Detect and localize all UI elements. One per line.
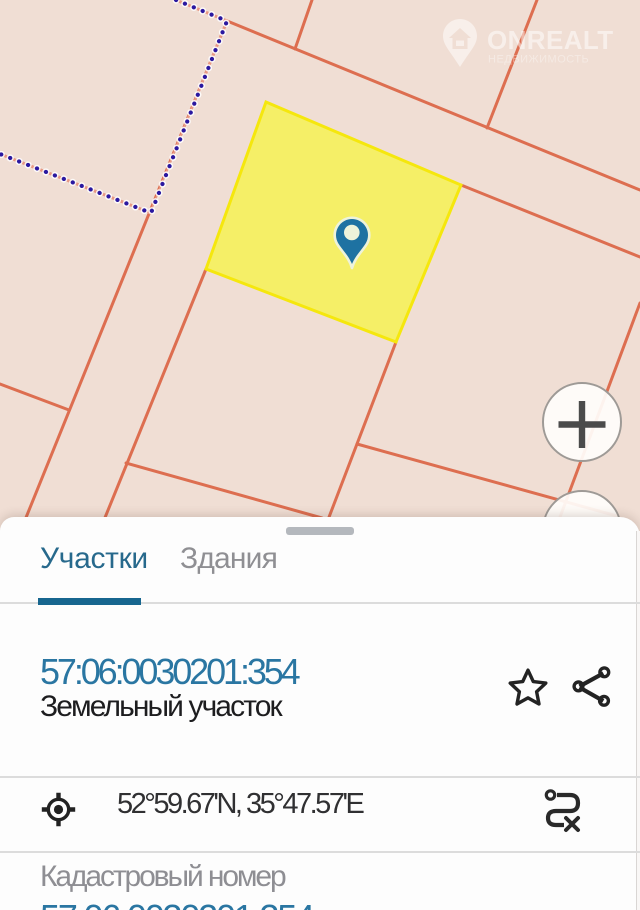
svg-text:ONREALT: ONREALT xyxy=(487,25,614,55)
svg-text:НЕДВИЖИМОСТЬ: НЕДВИЖИМОСТЬ xyxy=(488,54,589,66)
